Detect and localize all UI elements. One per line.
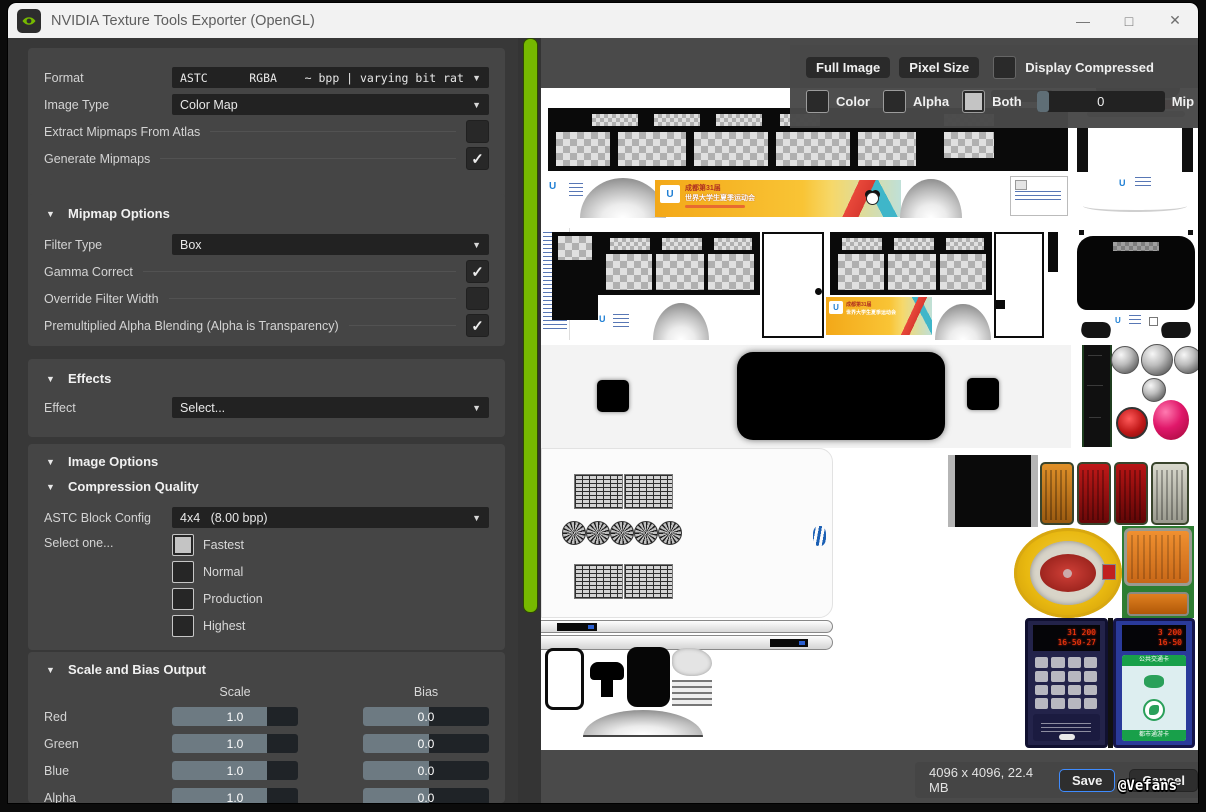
premultiplied-alpha-row: Premultiplied Alpha Blending (Alpha is T…: [28, 312, 505, 339]
panel-scrollbar-thumb[interactable]: [523, 38, 538, 613]
scale-bias-card: ▼ Scale and Bias Output Scale Bias Red 1…: [28, 652, 505, 803]
leader-line: [143, 271, 456, 272]
effect-row: Effect Select...▼: [28, 394, 505, 421]
pixel-size-button[interactable]: Pixel Size: [899, 57, 979, 78]
universiade-logo-icon: U: [829, 301, 843, 314]
filter-type-value: Box: [180, 238, 202, 252]
astc-block-label: ASTC Block Config: [44, 511, 172, 525]
mipmap-options-header[interactable]: ▼ Mipmap Options: [28, 194, 505, 223]
quality-radio-fastest[interactable]: [172, 534, 194, 556]
window-vent: [654, 114, 700, 126]
collapse-triangle-icon: ▼: [46, 374, 68, 384]
alpha-bias-slider[interactable]: 0.0: [363, 788, 489, 803]
quality-label: Fastest: [203, 538, 244, 552]
chevron-down-icon: ▼: [472, 240, 481, 250]
close-button[interactable]: ✕: [1152, 3, 1198, 38]
overlay-row-2: Color Alpha Both 0 Mip: [806, 90, 1194, 113]
circuit-line: [1088, 355, 1102, 356]
gamma-correct-label: Gamma Correct: [44, 265, 133, 279]
image-options-card: ▼ Image Options ▼ Compression Quality AS…: [28, 444, 505, 650]
texture-fare-machine-right: 3 200 16-50 公共交通卡 都市通游卡: [1113, 618, 1195, 748]
settings-panel: Format ASTC RGBA ~ bpp | varying bit rat…: [8, 38, 518, 803]
texture-taillight-amber: [1040, 462, 1074, 525]
alpha-bias-value: 0.0: [363, 788, 489, 803]
front-mark: [1149, 317, 1158, 326]
extract-mipmaps-label: Extract Mipmaps From Atlas: [44, 125, 200, 139]
effect-label: Effect: [44, 401, 172, 415]
leader-line: [210, 131, 456, 132]
blue-bias-slider[interactable]: 0.0: [363, 761, 489, 780]
green-scale-value: 1.0: [172, 734, 298, 753]
scale-bias-column-headers: Scale Bias: [28, 679, 505, 703]
watermark: @Vefans: [1118, 778, 1177, 794]
window-glass: [606, 254, 652, 290]
quality-option-production[interactable]: Production: [172, 585, 263, 612]
texture-chrome-lamp-small: [1142, 378, 1166, 402]
format-value: ASTC RGBA ~ bpp | varying bit rat: [180, 71, 464, 85]
window-glass: [708, 254, 754, 290]
skirt-badge: [799, 641, 805, 645]
effects-title: Effects: [68, 371, 111, 386]
card-coin-icon: [1143, 699, 1165, 721]
banner-text-2: 世界大学生夏季运动会: [685, 194, 755, 203]
astc-block-row: ASTC Block Config 4x4 (8.00 bpp)▼: [28, 504, 505, 531]
image-type-label: Image Type: [44, 98, 172, 112]
blue-scale-value: 1.0: [172, 761, 298, 780]
front-dot: [1079, 230, 1084, 235]
fare-card-panel: 公共交通卡 都市通游卡: [1122, 655, 1186, 741]
override-filter-width-row: Override Filter Width: [28, 285, 505, 312]
texture-small-text-block: [613, 314, 629, 328]
effect-dropdown[interactable]: Select...▼: [172, 397, 489, 418]
texture-window-band-2a: [598, 232, 760, 295]
alpha-scale-slider[interactable]: 1.0: [172, 788, 298, 803]
window-glass: [838, 254, 884, 290]
extract-mipmaps-checkbox[interactable]: [466, 120, 489, 143]
channel-label: Green: [44, 737, 172, 751]
full-image-button[interactable]: Full Image: [806, 57, 890, 78]
texture-door-opening: [762, 232, 824, 338]
red-scale-slider[interactable]: 1.0: [172, 707, 298, 726]
extract-mipmaps-row: Extract Mipmaps From Atlas: [28, 118, 505, 145]
notice-lines: [1015, 191, 1061, 201]
generate-mipmaps-row: Generate Mipmaps ✓: [28, 145, 505, 172]
skirt-inset: [557, 623, 597, 631]
app-window: NVIDIA Texture Tools Exporter (OpenGL) —…: [8, 3, 1198, 803]
front-headlight: [1079, 322, 1112, 338]
check-icon: ✓: [471, 263, 484, 281]
banner-text-1: 成都第31届: [685, 184, 721, 193]
window-vent: [662, 238, 702, 250]
quality-label: Normal: [203, 565, 243, 579]
universiade-logo-icon: U: [599, 314, 606, 324]
display-compressed-label: Display Compressed: [1025, 60, 1154, 75]
scale-bias-row-alpha: Alpha 1.0 0.0: [28, 784, 505, 803]
coin-glyph: [1149, 705, 1159, 715]
ac-fan-row: [562, 521, 682, 545]
collapse-triangle-icon: ▼: [46, 482, 68, 492]
texture-roof-hatch-small: [967, 378, 999, 410]
window-glass: [694, 132, 768, 166]
banner-artwork: [817, 180, 901, 217]
texture-taillight-red: [1077, 462, 1111, 525]
texture-marker-bar-orange: [1127, 592, 1189, 616]
universiade-logo-icon: U: [1115, 316, 1121, 325]
texture-window-band-2b: [830, 232, 992, 295]
red-bias-value: 0.0: [363, 707, 489, 726]
check-icon: ✓: [471, 317, 484, 335]
image-type-value: Color Map: [180, 98, 238, 112]
color-channel-label: Color: [836, 94, 870, 109]
image-options-header[interactable]: ▼ Image Options: [28, 444, 505, 471]
quality-option-fastest[interactable]: Fastest: [172, 531, 263, 558]
chevron-down-icon: ▼: [472, 73, 481, 83]
texture-fog-lamp-yellow: [1014, 528, 1122, 618]
fare-led-line2: 16-50: [1122, 638, 1182, 648]
image-options-title: Image Options: [68, 454, 158, 469]
quality-label: Production: [203, 592, 263, 606]
scale-column-header: Scale: [172, 685, 298, 699]
texture-ac-panel: [541, 448, 833, 618]
overlay-row-1: Full Image Pixel Size Display Compressed: [806, 56, 1154, 79]
color-channel-checkbox[interactable]: [806, 90, 829, 113]
window-glass: [656, 254, 704, 290]
texture-fare-machine-left: 31 200 16-50-27: [1025, 618, 1108, 748]
window-vent: [716, 114, 762, 126]
texture-circuit-panel: [1082, 345, 1112, 447]
window-glass: [558, 236, 592, 260]
quality-option-highest[interactable]: Highest: [172, 612, 263, 639]
format-label: Format: [44, 71, 172, 85]
filter-type-dropdown[interactable]: Box▼: [172, 234, 489, 255]
filter-type-row: Filter Type Box▼: [28, 231, 505, 258]
texture-roof-hatch-small: [597, 380, 629, 412]
premultiplied-alpha-checkbox[interactable]: ✓: [466, 314, 489, 337]
quality-radio-highest[interactable]: [172, 615, 194, 637]
effects-header[interactable]: ▼ Effects: [28, 359, 505, 388]
ac-fan-icon: [610, 521, 634, 545]
alpha-channel-checkbox[interactable]: [883, 90, 906, 113]
fare-led-line2: 16-50-27: [1033, 638, 1096, 648]
nvidia-logo-icon: [17, 9, 41, 33]
quality-option-normal[interactable]: Normal: [172, 558, 263, 585]
effect-value: Select...: [180, 401, 225, 415]
banner-text-1: 成都第31届: [846, 301, 872, 308]
mipmap-options-card: ▼ Mipmap Options Filter Type Box▼ Gamma …: [28, 194, 505, 346]
image-type-row: Image Type Color Map▼: [28, 91, 505, 118]
image-type-dropdown[interactable]: Color Map▼: [172, 94, 489, 115]
texture-red-reflector: [1116, 407, 1148, 439]
window-vent: [714, 238, 752, 250]
blue-bias-value: 0.0: [363, 761, 489, 780]
fare-led-display: 3 200 16-50: [1122, 625, 1186, 651]
main-content: Format ASTC RGBA ~ bpp | varying bit rat…: [8, 38, 1198, 803]
circuit-line: [1089, 417, 1101, 418]
texture-small-text-block: [569, 183, 583, 199]
quality-radio-production[interactable]: [172, 588, 194, 610]
mip-label: Mip: [1172, 94, 1194, 109]
alpha-channel-label: Alpha: [913, 94, 949, 109]
channel-label: Blue: [44, 764, 172, 778]
collapse-triangle-icon: ▼: [46, 665, 68, 675]
universiade-logo-icon: U: [660, 185, 680, 203]
blue-scale-slider[interactable]: 1.0: [172, 761, 298, 780]
leader-line: [160, 158, 456, 159]
plate-text-lines: [1041, 720, 1091, 732]
panel-scrollbar-track[interactable]: [518, 38, 541, 803]
texture-taillight-red: [1114, 462, 1148, 525]
texture-roof-hatch-large: [737, 352, 945, 440]
texture-red-reflector-large: [1153, 400, 1189, 440]
skirt-badge: [588, 625, 594, 629]
window-vent: [894, 238, 934, 250]
fog-lamp-switch: [1102, 564, 1116, 580]
minimize-button[interactable]: —: [1060, 3, 1106, 38]
texture-size-info: 4096 x 4096, 22.4 MB: [929, 765, 1046, 795]
mip-value: 0: [1037, 91, 1165, 112]
chevron-down-icon: ▼: [472, 100, 481, 110]
scale-bias-row-green: Green 1.0 0.0: [28, 730, 505, 757]
front-dot: [1188, 230, 1193, 235]
texture-chrome-lamp: [1111, 346, 1139, 374]
texture-gray-blob: [672, 648, 712, 676]
maximize-button[interactable]: □: [1106, 3, 1152, 38]
texture-taillight-clear: [1151, 462, 1189, 525]
ac-grille: [574, 564, 623, 599]
front-logo-text: [1129, 315, 1141, 325]
banner-artwork: [896, 297, 932, 335]
filter-type-label: Filter Type: [44, 238, 172, 252]
window-vent: [946, 238, 984, 250]
generate-mipmaps-label: Generate Mipmaps: [44, 152, 150, 166]
texture-vent-stack: [672, 680, 712, 706]
texture-chrome-lamp: [1174, 346, 1198, 374]
title-bar[interactable]: NVIDIA Texture Tools Exporter (OpenGL) —…: [8, 3, 1198, 38]
alpha-scale-value: 1.0: [172, 788, 298, 803]
ac-fan-icon: [562, 521, 586, 545]
panda-mascot-icon: [866, 192, 879, 205]
red-scale-value: 1.0: [172, 707, 298, 726]
rear-bumper-line: [1083, 200, 1187, 212]
ac-fan-icon: [586, 521, 610, 545]
astc-block-dropdown[interactable]: 4x4 (8.00 bpp)▼: [172, 507, 489, 528]
plate-label: [1059, 734, 1075, 740]
channel-label: Red: [44, 710, 172, 724]
leader-line: [169, 298, 456, 299]
fare-led-display: 31 200 16-50-27: [1033, 625, 1100, 651]
quality-radio-normal[interactable]: [172, 561, 194, 583]
fare-led-line1: 3 200: [1122, 628, 1182, 638]
texture-outline-box: [545, 648, 584, 710]
scale-bias-row-blue: Blue 1.0 0.0: [28, 757, 505, 784]
ac-fan-icon: [658, 521, 682, 545]
skirt-inset: [770, 639, 808, 647]
chevron-down-icon: ▼: [472, 513, 481, 523]
red-bias-slider[interactable]: 0.0: [363, 707, 489, 726]
scale-bias-row-red: Red 1.0 0.0: [28, 703, 505, 730]
mip-slider[interactable]: 0: [1037, 91, 1165, 112]
brand-logo-icon: [813, 526, 826, 546]
texture-chrome-lamp: [1141, 344, 1173, 376]
ac-fan-icon: [634, 521, 658, 545]
compression-quality-title: Compression Quality: [68, 479, 199, 494]
fare-lower-plate: [1033, 714, 1100, 741]
astc-block-value: 4x4 (8.00 bpp): [180, 511, 268, 525]
scale-bias-title: Scale and Bias Output: [68, 662, 206, 677]
chevron-down-icon: ▼: [472, 403, 481, 413]
texture-mirror-stem: [601, 678, 613, 697]
window-vent: [610, 238, 650, 250]
texture-dot: [996, 300, 1005, 309]
universiade-logo-icon: U: [549, 181, 556, 192]
ac-grille: [624, 474, 673, 509]
save-button[interactable]: Save: [1059, 769, 1115, 792]
mipmap-options-title: Mipmap Options: [68, 206, 170, 221]
gamma-correct-checkbox[interactable]: ✓: [466, 260, 489, 283]
ac-grille: [624, 564, 673, 599]
format-row: Format ASTC RGBA ~ bpp | varying bit rat…: [28, 64, 505, 91]
bias-column-header: Bias: [363, 685, 489, 699]
circuit-line: [1087, 385, 1103, 386]
channel-label: Alpha: [44, 791, 172, 804]
green-bias-value: 0.0: [363, 734, 489, 753]
override-filter-width-checkbox[interactable]: [466, 287, 489, 310]
fare-keypad: [1035, 657, 1097, 709]
check-icon: ✓: [471, 150, 484, 168]
marker-lens-grid: [1131, 535, 1185, 579]
window-glass: [556, 132, 610, 166]
both-channel-checkbox[interactable]: [962, 90, 985, 113]
card-panel-top-label: 公共交通卡: [1122, 655, 1186, 666]
preview-controls-overlay: Full Image Pixel Size Display Compressed…: [790, 45, 1198, 128]
notice-box: [1015, 180, 1027, 190]
window-glass: [776, 132, 850, 166]
collapse-triangle-icon: ▼: [46, 209, 68, 219]
rear-logo-text: [1135, 177, 1151, 189]
display-compressed-checkbox[interactable]: [993, 56, 1016, 79]
window-glass: [888, 254, 936, 290]
windshield-strip: [1113, 242, 1159, 251]
window-title: NVIDIA Texture Tools Exporter (OpenGL): [51, 13, 1060, 29]
leader-line: [349, 325, 456, 326]
rear-pillar: [1182, 128, 1193, 172]
format-card: Format ASTC RGBA ~ bpp | varying bit rat…: [28, 48, 505, 202]
texture-door-opening: [994, 232, 1044, 338]
compression-quality-header[interactable]: ▼ Compression Quality: [28, 471, 505, 496]
window-vent: [842, 238, 882, 250]
banner-subline: [685, 205, 745, 208]
window-glass: [858, 132, 916, 166]
override-filter-width-label: Override Filter Width: [44, 292, 159, 306]
texture-bus-front: U: [1077, 222, 1195, 345]
scale-bias-header[interactable]: ▼ Scale and Bias Output: [28, 652, 505, 679]
fog-lamp-hub: [1063, 569, 1072, 578]
quality-label: Highest: [203, 619, 245, 633]
card-panel-bottom-label: 都市通游卡: [1122, 730, 1186, 741]
green-bias-slider[interactable]: 0.0: [363, 734, 489, 753]
texture-dot: [815, 288, 822, 295]
window-vent: [592, 114, 638, 126]
both-channel-label: Both: [992, 94, 1022, 109]
texture-marker-lamp-orange: [1124, 528, 1192, 586]
texture-notice-plate: [1010, 176, 1068, 216]
universiade-logo-icon: U: [1119, 178, 1126, 188]
texture-ad-banner-small: U 成都第31届 世界大学生夏季运动会: [826, 297, 932, 335]
premultiplied-alpha-label: Premultiplied Alpha Blending (Alpha is T…: [44, 319, 339, 333]
banner-text-2: 世界大学生夏季运动会: [846, 309, 896, 316]
card-icon: [1144, 675, 1164, 688]
select-one-row: Select one... Fastest Normal Production …: [28, 531, 505, 639]
format-dropdown[interactable]: ASTC RGBA ~ bpp | varying bit rat▼: [172, 67, 489, 88]
generate-mipmaps-checkbox[interactable]: ✓: [466, 147, 489, 170]
texture-preview-canvas[interactable]: U 成都第31届 世界大学生夏季运动会 U U: [541, 38, 1198, 803]
texture-black-block: [627, 647, 670, 707]
texture-black-insert: [948, 455, 1038, 527]
front-headlight: [1159, 322, 1192, 338]
rear-pillar: [1077, 128, 1088, 172]
window-glass: [618, 132, 686, 166]
front-windshield: [1077, 236, 1195, 310]
texture-rear-corner-panel: [552, 232, 598, 320]
quality-options: Fastest Normal Production Highest: [172, 531, 263, 639]
texture-skirt-bar: [541, 620, 833, 633]
ac-grille: [574, 474, 623, 509]
window-glass: [944, 132, 994, 158]
texture-ad-banner: U 成都第31届 世界大学生夏季运动会: [655, 180, 901, 217]
green-scale-slider[interactable]: 1.0: [172, 734, 298, 753]
fare-led-line1: 31 200: [1033, 628, 1096, 638]
window-glass: [940, 254, 986, 290]
select-one-label: Select one...: [44, 531, 172, 639]
texture-panel-nub: [1048, 232, 1058, 272]
gamma-correct-row: Gamma Correct ✓: [28, 258, 505, 285]
effects-card: ▼ Effects Effect Select...▼: [28, 359, 505, 437]
collapse-triangle-icon: ▼: [46, 457, 68, 467]
